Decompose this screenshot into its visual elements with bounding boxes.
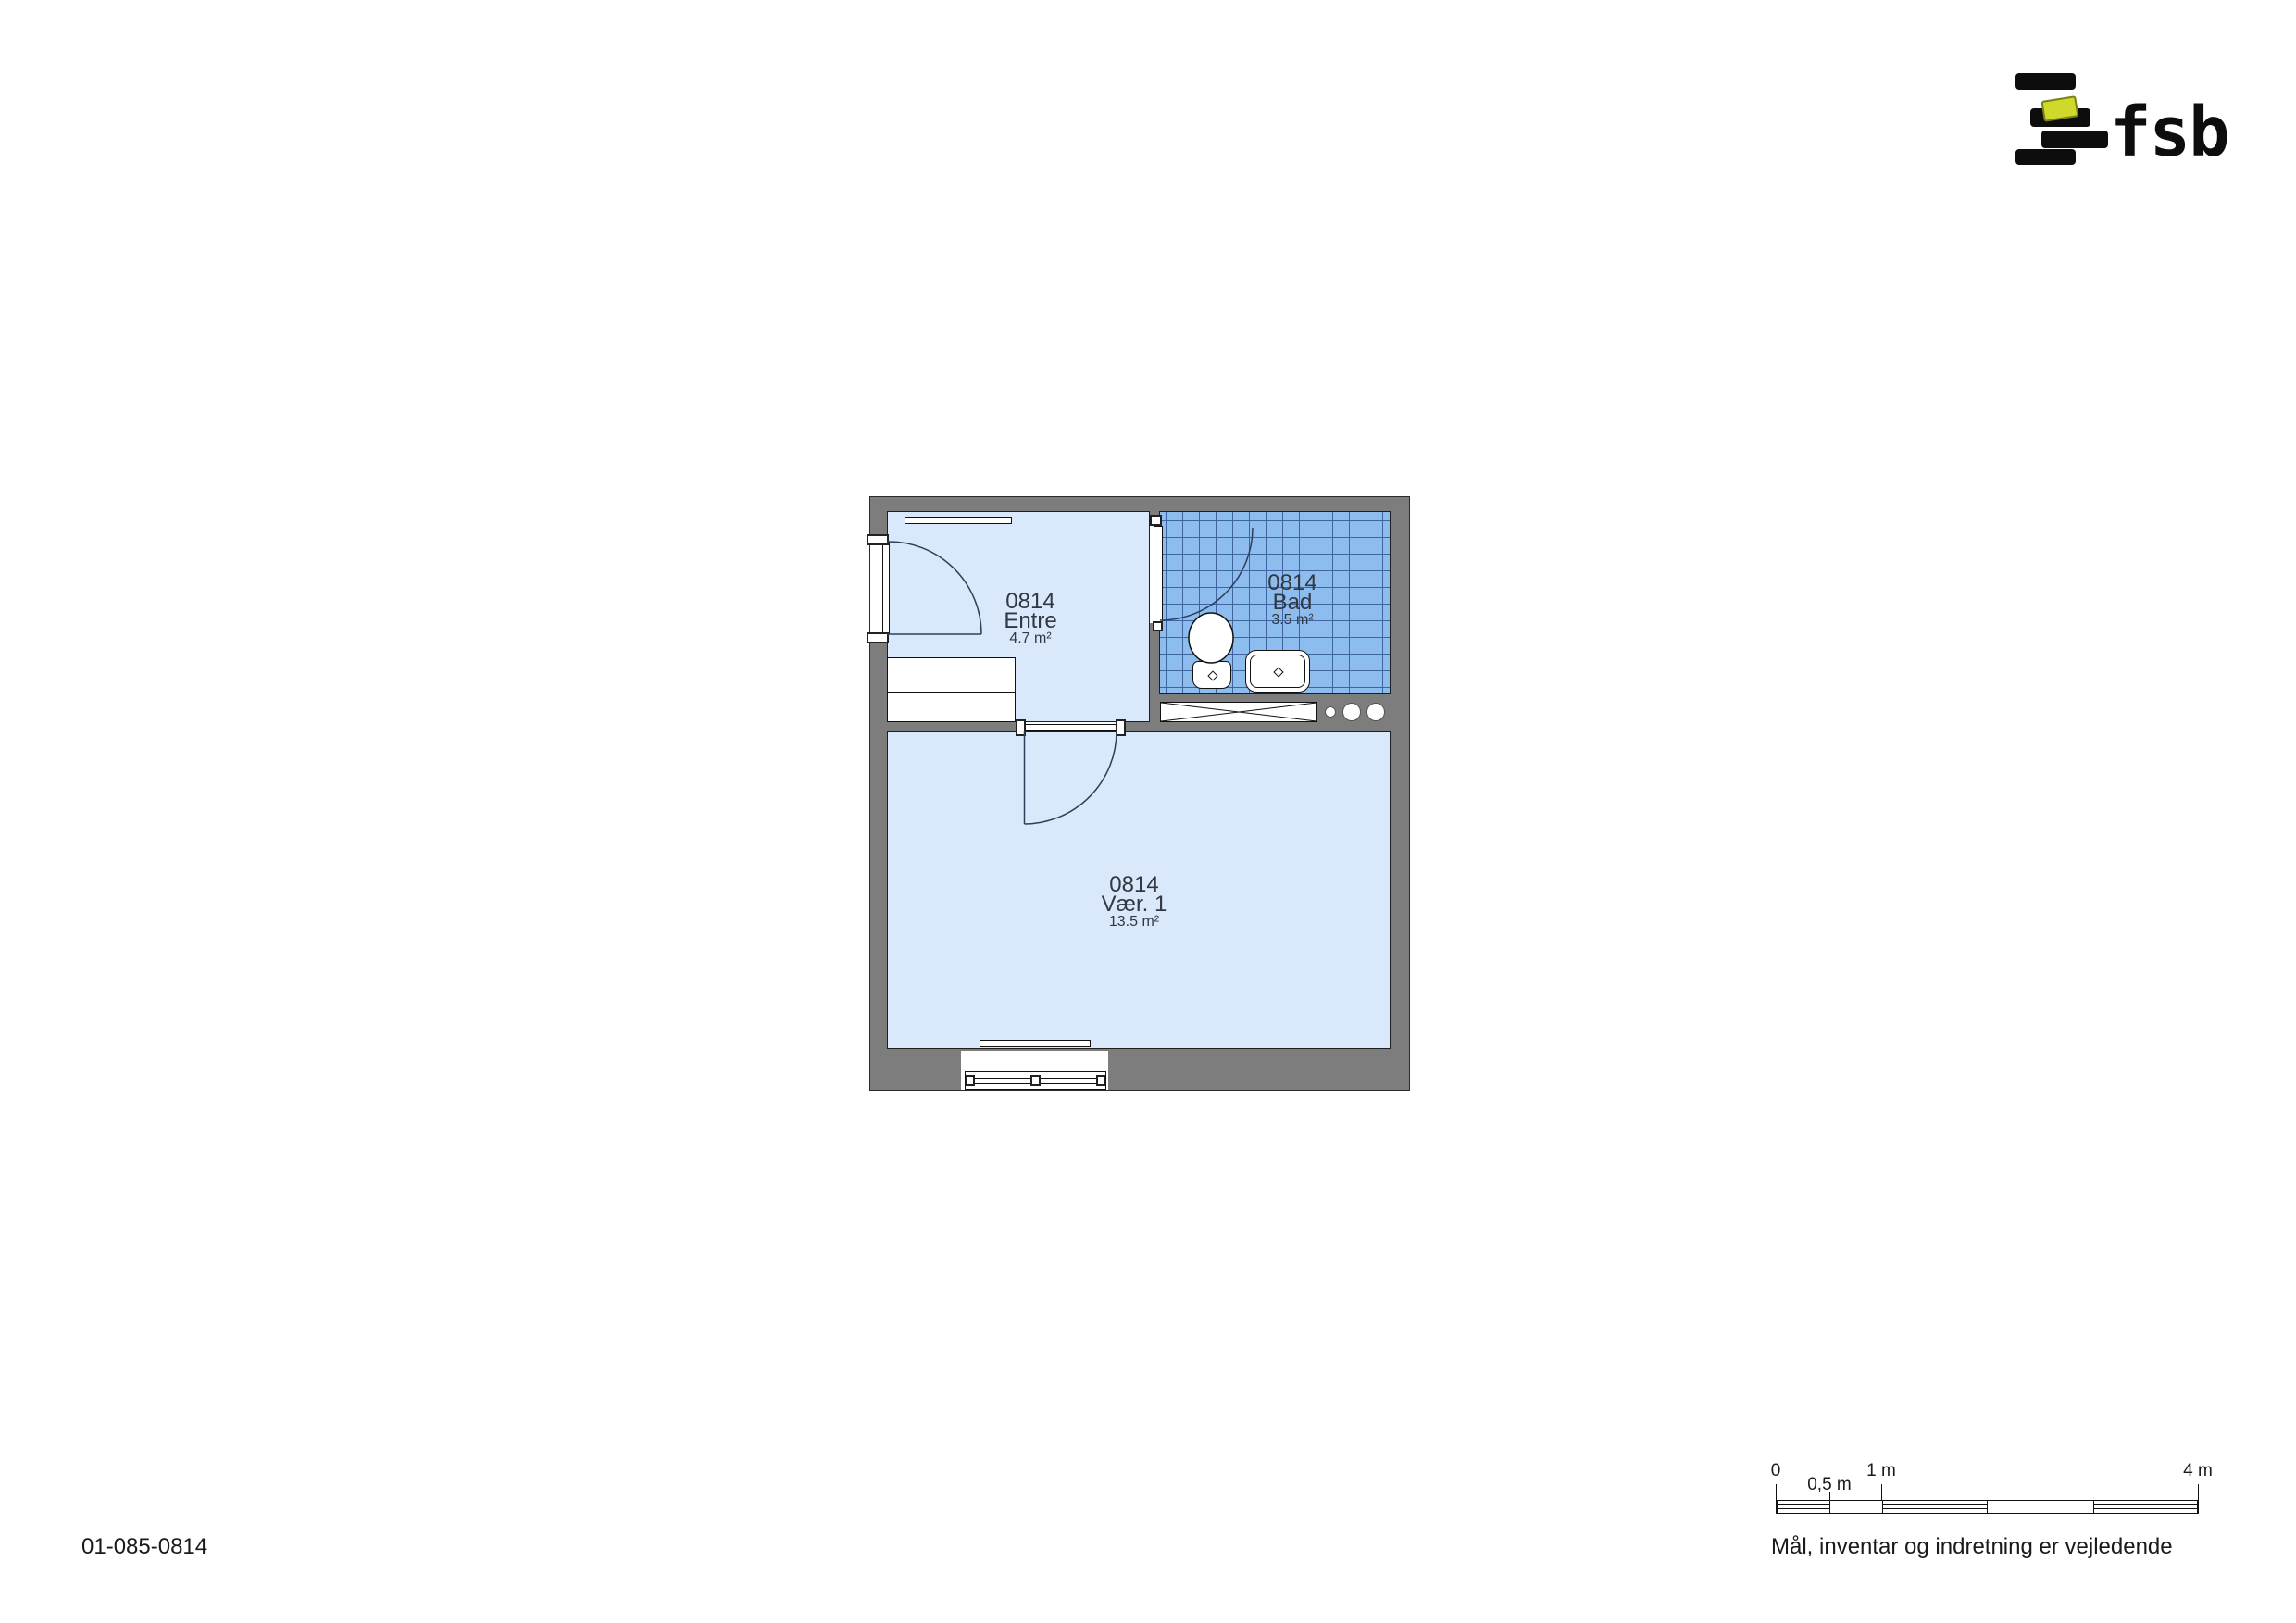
room-area: 3.5 m² <box>1267 612 1316 628</box>
fsb-logo: fsb <box>2014 70 2240 172</box>
room-label-bad: 0814 Bad 3.5 m² <box>1267 573 1316 628</box>
scale-segment <box>1777 1501 1830 1513</box>
room-area: 4.7 m² <box>1004 630 1056 646</box>
logo-bar-icon <box>2015 73 2076 90</box>
scale-bar: 0 0,5 m 1 m 4 m <box>1776 1461 2199 1515</box>
room-name: Bad <box>1267 593 1316 612</box>
scale-tick <box>2198 1484 2199 1500</box>
scale-label-1m: 1 m <box>1866 1461 1896 1481</box>
room-label-entre: 0814 Entre 4.7 m² <box>1004 592 1056 646</box>
room-name: Vær. 1 <box>1102 894 1167 914</box>
scale-tick <box>1776 1484 1777 1500</box>
logo-wordmark: fsb <box>2110 98 2228 167</box>
scale-tick <box>1881 1484 1882 1500</box>
disclaimer-text: Mål, inventar og indretning er vejledend… <box>1771 1534 2173 1560</box>
room-name: Entre <box>1004 611 1056 630</box>
scale-tick <box>1829 1492 1830 1500</box>
scale-label-0: 0 <box>1771 1461 1781 1481</box>
scale-label-4m: 4 m <box>2183 1461 2213 1481</box>
logo-bar-icon <box>2015 149 2076 165</box>
scale-bar-ruler <box>1776 1500 2199 1514</box>
logo-bar-icon <box>2041 131 2108 148</box>
room-label-vaer1: 0814 Vær. 1 13.5 m² <box>1102 875 1167 930</box>
room-area: 13.5 m² <box>1102 914 1167 930</box>
floor-plan: 0814 Entre 4.7 m² 0814 Bad 3.5 m² 0814 V… <box>870 493 1409 1090</box>
scale-segment <box>1882 1501 1988 1513</box>
drawing-number: 01-085-0814 <box>81 1534 207 1560</box>
scale-segment <box>2093 1501 2198 1513</box>
plan-linework <box>870 493 1409 1090</box>
